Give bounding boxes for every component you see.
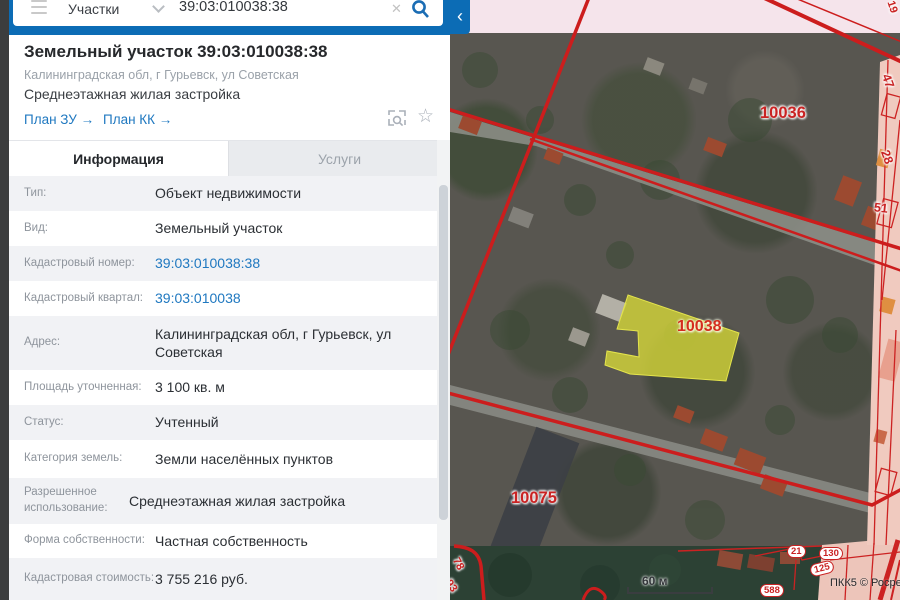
- row-value: Учтенный: [155, 413, 450, 431]
- panel-tabs: Информация Услуги: [9, 140, 450, 176]
- row-label: Вид:: [9, 221, 155, 237]
- scale-bar: [627, 589, 713, 594]
- search-icon[interactable]: [411, 0, 430, 24]
- favorite-star-icon[interactable]: ☆: [417, 105, 434, 128]
- collapse-panel-button[interactable]: ‹: [450, 0, 470, 34]
- chevron-down-icon[interactable]: [152, 0, 165, 13]
- row-cadastral-quarter: Кадастровый квартал: 39:03:010038: [9, 281, 450, 316]
- highlighted-parcel[interactable]: [605, 295, 739, 381]
- row-cadastral-value: Кадастровая стоимость: 3 755 216 руб.: [9, 558, 450, 600]
- top-bar: Участки ✕: [9, 0, 450, 35]
- row-label: Тип:: [9, 186, 155, 202]
- info-panel: Земельный участок 39:03:010038:38 Калини…: [9, 35, 450, 600]
- row-permitted-use: Разрешенное использование: Среднеэтажная…: [9, 478, 450, 524]
- parcel-pill-130: 130: [819, 547, 843, 560]
- map-canvas[interactable]: [450, 0, 900, 600]
- plan-zu-link[interactable]: План ЗУ →: [24, 112, 94, 127]
- map-attribution: ПКК5 © Росре: [830, 577, 900, 589]
- cadastral-number-link[interactable]: 39:03:010038:38: [155, 254, 450, 272]
- row-cadastral-number: Кадастровый номер: 39:03:010038:38: [9, 246, 450, 281]
- row-value: Объект недвижимости: [155, 184, 450, 202]
- row-land-category: Категория земель: Земли населённых пункт…: [9, 440, 450, 478]
- hamburger-menu-icon[interactable]: [31, 0, 47, 14]
- row-label: Адрес:: [9, 335, 155, 351]
- quarter-label-10075[interactable]: 10075: [511, 489, 557, 508]
- page-title: Земельный участок 39:03:010038:38: [24, 42, 328, 62]
- row-value: Земли населённых пунктов: [155, 450, 450, 468]
- parcel-label-10038[interactable]: 10038: [677, 318, 722, 336]
- parcel-pill-21: 21: [787, 545, 806, 558]
- row-kind: Вид: Земельный участок: [9, 211, 450, 246]
- tab-services[interactable]: Услуги: [228, 141, 450, 177]
- app-window: 10036 10038 10075 19 47 28 51 78 93 21 1…: [0, 0, 900, 600]
- row-label: Кадастровая стоимость:: [9, 571, 155, 587]
- parcel-pill-588: 588: [760, 584, 784, 597]
- parcel-label-51: 51: [873, 200, 888, 215]
- info-table: Тип: Объект недвижимости Вид: Земельный …: [9, 176, 450, 600]
- row-label: Кадастровый квартал:: [9, 291, 155, 307]
- search-input[interactable]: [177, 0, 387, 16]
- object-usage: Среднеэтажная жилая застройка: [24, 86, 240, 102]
- map-viewport[interactable]: 10036 10038 10075 19 47 28 51 78 93 21 1…: [450, 0, 900, 600]
- row-label: Форма собственности:: [9, 533, 155, 549]
- tab-information[interactable]: Информация: [9, 141, 228, 177]
- scrollbar-thumb[interactable]: [439, 185, 448, 520]
- search-category-dropdown[interactable]: Участки: [68, 1, 119, 17]
- cadastral-quarter-link[interactable]: 39:03:010038: [155, 289, 450, 307]
- row-label: Кадастровый номер:: [9, 256, 155, 272]
- preview-document-icon[interactable]: [386, 107, 408, 134]
- object-address: Калининградская обл, г Гурьевск, ул Сове…: [24, 68, 299, 82]
- row-value: 3 100 кв. м: [155, 378, 450, 396]
- row-value: 3 755 216 руб.: [155, 570, 450, 588]
- row-status: Статус: Учтенный: [9, 405, 450, 440]
- row-address: Адрес: Калининградская обл, г Гурьевск, …: [9, 316, 450, 370]
- quarter-label-10036[interactable]: 10036: [760, 104, 806, 123]
- plan-kk-link[interactable]: План КК →: [103, 112, 172, 127]
- panel-scrollbar[interactable]: [437, 140, 450, 600]
- row-label: Площадь уточненная:: [9, 380, 155, 396]
- row-label: Разрешенное использование:: [9, 485, 129, 516]
- row-label: Статус:: [9, 415, 155, 431]
- row-value: Среднеэтажная жилая застройка: [129, 492, 450, 510]
- clear-search-icon[interactable]: ✕: [391, 1, 402, 17]
- search-box: Участки ✕: [13, 0, 443, 26]
- row-ownership: Форма собственности: Частная собственнос…: [9, 524, 450, 558]
- row-value: Калининградская обл, г Гурьевск, ул Сове…: [155, 325, 417, 361]
- scale-bar-label: 60 м: [642, 574, 668, 588]
- row-value: Земельный участок: [155, 219, 450, 237]
- row-value: Частная собственность: [155, 532, 450, 550]
- road-upper: [450, 112, 900, 274]
- row-area: Площадь уточненная: 3 100 кв. м: [9, 370, 450, 405]
- row-label: Категория земель:: [9, 451, 155, 467]
- row-type: Тип: Объект недвижимости: [9, 176, 450, 211]
- window-edge: [0, 0, 9, 600]
